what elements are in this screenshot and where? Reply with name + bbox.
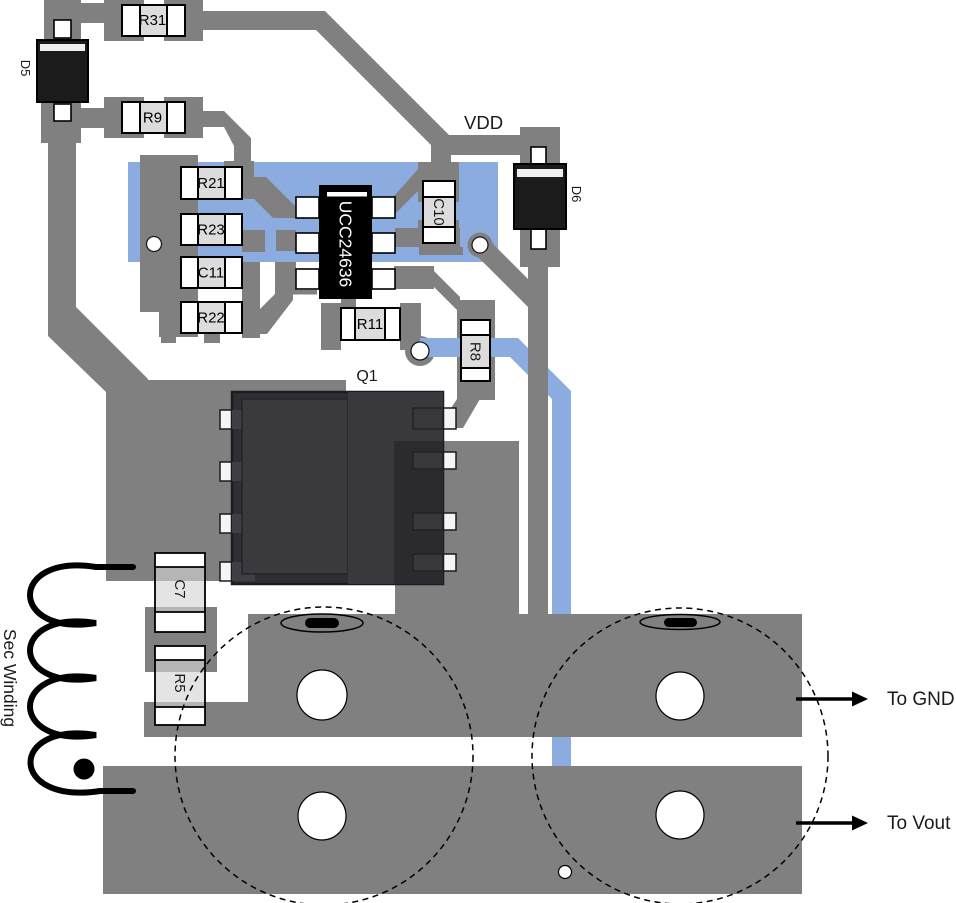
svg-text:C10: C10 (430, 198, 447, 226)
svg-text:C7: C7 (171, 579, 188, 598)
svg-text:R22: R22 (197, 310, 225, 327)
svg-text:R8: R8 (467, 342, 484, 361)
svg-text:R23: R23 (197, 222, 225, 239)
svg-text:To Vout: To Vout (887, 813, 951, 834)
svg-text:R5: R5 (171, 673, 188, 692)
svg-text:R9: R9 (143, 110, 162, 127)
svg-text:D6: D6 (569, 186, 584, 203)
svg-text:D5: D5 (18, 60, 33, 77)
svg-text:UCC24636: UCC24636 (336, 201, 356, 288)
svg-text:To GND: To GND (887, 689, 955, 710)
svg-text:C11: C11 (198, 265, 224, 282)
svg-text:VDD: VDD (464, 112, 503, 133)
svg-text:R31: R31 (139, 12, 167, 29)
svg-text:Sec Winding: Sec Winding (0, 629, 20, 727)
svg-text:R21: R21 (197, 175, 225, 192)
svg-text:Q1: Q1 (356, 368, 377, 385)
svg-text:R11: R11 (357, 316, 383, 333)
